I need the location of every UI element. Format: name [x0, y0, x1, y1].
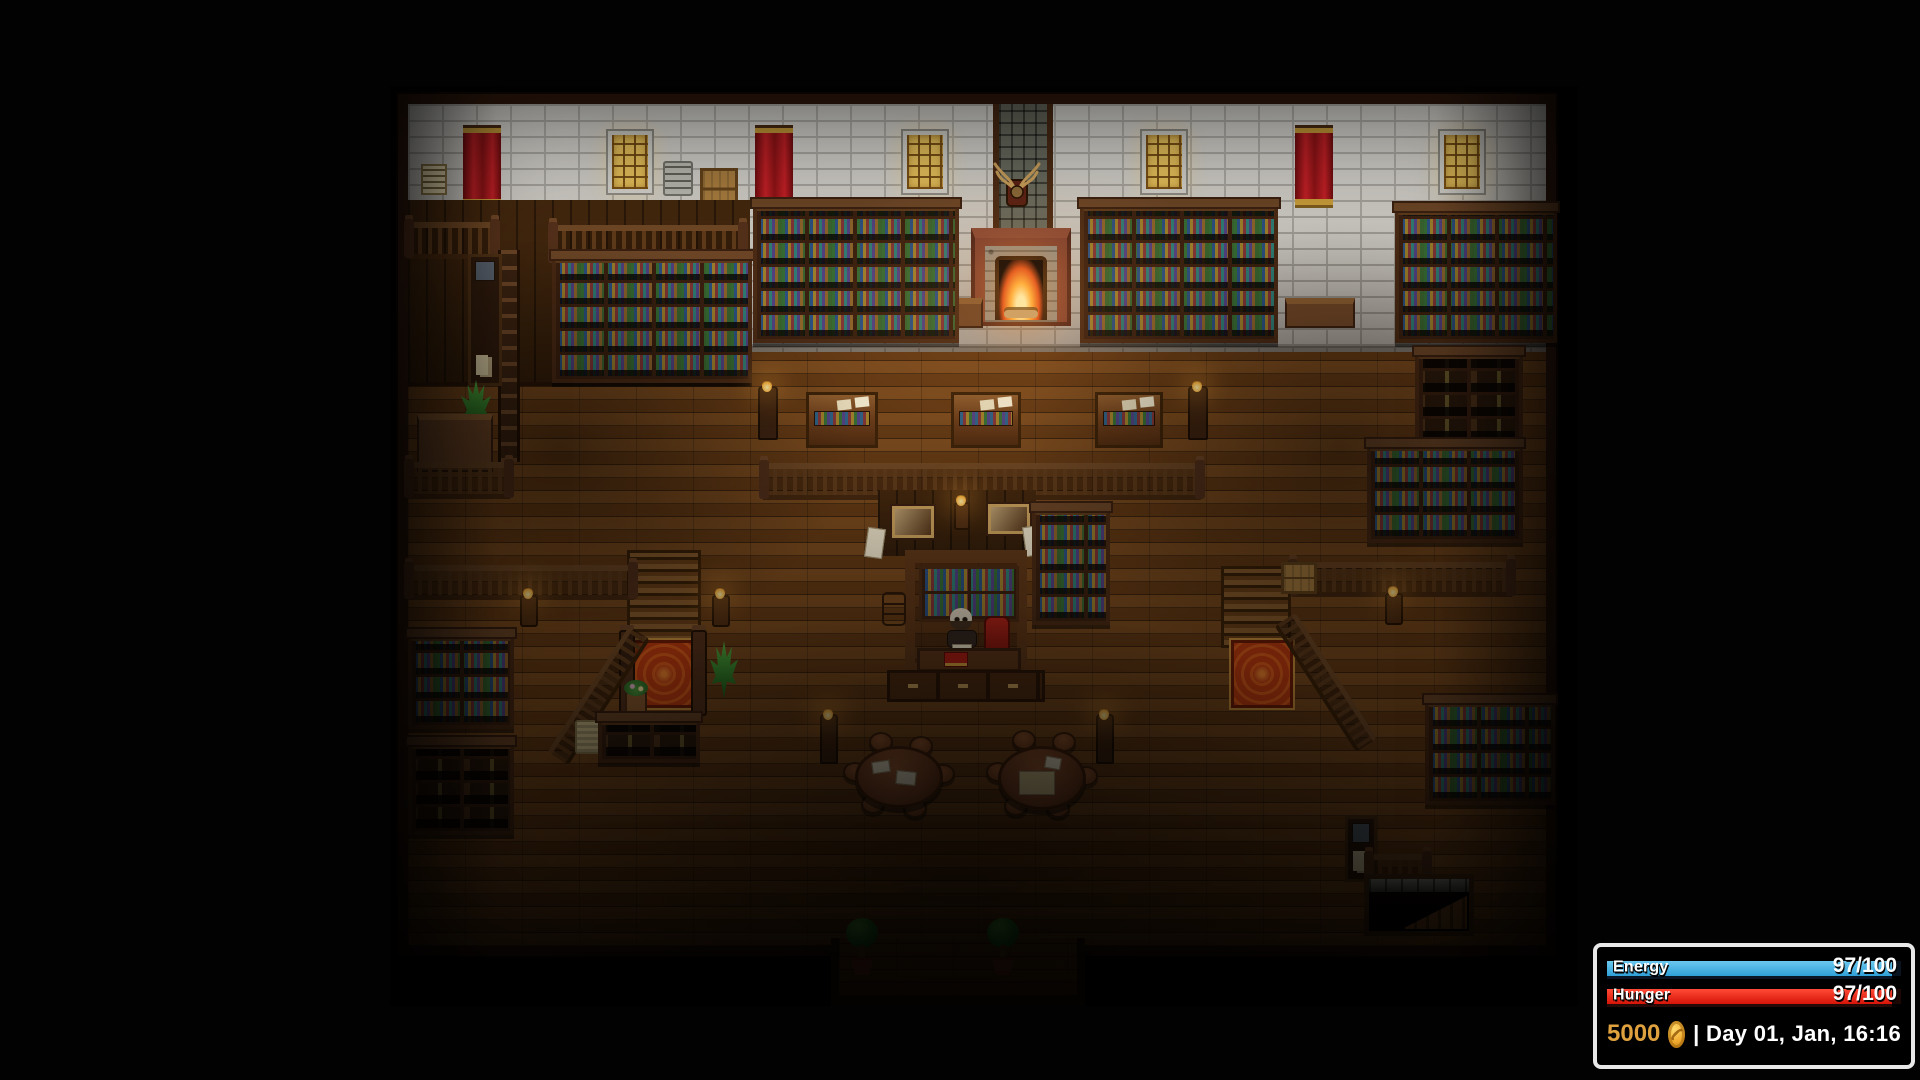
paper: [1044, 756, 1062, 771]
candle-flame-icon: [762, 380, 772, 392]
wall-torch: [520, 595, 538, 627]
bookshelf[interactable]: [1080, 204, 1278, 343]
study-desk[interactable]: [1095, 392, 1163, 448]
energy-row: Energy 97/100: [1607, 961, 1901, 976]
map-paper: [1019, 771, 1055, 795]
round-table[interactable]: [998, 746, 1086, 810]
bookshelf[interactable]: [1032, 508, 1110, 625]
painting: [892, 506, 934, 538]
paper: [895, 770, 916, 786]
guest-book[interactable]: [944, 652, 968, 667]
stairs-down[interactable]: [1364, 874, 1474, 936]
window: [903, 131, 947, 193]
balcony-railing: [1292, 562, 1512, 597]
study-desk[interactable]: [806, 392, 878, 448]
wall-torch: [712, 595, 730, 627]
torch-flame-icon: [956, 494, 966, 506]
torch-flame-icon: [1388, 585, 1398, 597]
status-hud: Energy 97/100 Hunger 97/100 5000 | Day 0…: [1593, 943, 1915, 1069]
fireplace-opening: [995, 256, 1047, 320]
potted-plant: [710, 641, 738, 699]
low-bookshelf[interactable]: [598, 718, 700, 763]
red-carpet: [1231, 640, 1293, 708]
bookshelf[interactable]: [1395, 208, 1557, 343]
barrel: [882, 592, 906, 626]
hunger-label: Hunger: [1613, 986, 1670, 1004]
candle-post: [1096, 714, 1114, 764]
hunger-row: Hunger 97/100: [1607, 989, 1901, 1004]
money-amount: 5000: [1607, 1020, 1660, 1048]
topiary-plant: [986, 918, 1022, 974]
candle-post: [758, 386, 778, 440]
fireplace[interactable]: [971, 228, 1071, 326]
game-screen: Energy 97/100 Hunger 97/100 5000 | Day 0…: [0, 0, 1920, 1080]
long-bench: [1285, 298, 1355, 328]
bookshelf[interactable]: [408, 634, 514, 729]
candle-post: [1188, 386, 1208, 440]
hunger-value: 97/100: [1833, 982, 1897, 1006]
staircase-left[interactable]: [627, 550, 701, 644]
notice-cabinet[interactable]: [468, 254, 502, 386]
candle-flame-icon: [823, 708, 833, 720]
torch-flame-icon: [523, 587, 533, 599]
candle-flame-icon: [1099, 708, 1109, 720]
drawer-cabinet[interactable]: [887, 670, 1045, 702]
antler-trophy-icon: [985, 156, 1049, 212]
wooden-crate: [1281, 562, 1317, 594]
bookshelf[interactable]: [552, 256, 752, 383]
bookshelf[interactable]: [408, 742, 514, 835]
stair-post: [691, 630, 707, 716]
topiary-plant: [845, 918, 881, 974]
wall-note-sign[interactable]: [421, 164, 447, 195]
bookshelf[interactable]: [1425, 700, 1555, 805]
bookshelf[interactable]: [1415, 352, 1523, 447]
red-banner: [755, 128, 793, 205]
bookshelf[interactable]: [1367, 444, 1523, 543]
energy-label: Energy: [1613, 958, 1668, 976]
candle-flame-icon: [1192, 380, 1202, 392]
window: [1440, 131, 1484, 193]
energy-value: 97/100: [1833, 954, 1897, 978]
red-banner: [1295, 128, 1333, 205]
paper: [871, 760, 890, 774]
candle-post: [820, 714, 838, 764]
npc-beard: [950, 621, 972, 630]
window: [1142, 131, 1186, 193]
torch-flame-icon: [715, 587, 725, 599]
library-room: [398, 94, 1556, 956]
counter-desk: [917, 648, 1021, 672]
balcony-railing: [408, 462, 510, 499]
fire-icon: [999, 260, 1043, 320]
bookshelf[interactable]: [753, 204, 959, 343]
wall-torch: [1385, 593, 1403, 625]
study-desk[interactable]: [951, 392, 1021, 448]
round-table[interactable]: [855, 746, 943, 808]
window: [608, 131, 652, 193]
red-banner: [463, 128, 501, 205]
money-date-row: 5000 | Day 01, Jan, 16:16: [1607, 1020, 1901, 1048]
datetime-text: | Day 01, Jan, 16:16: [1693, 1021, 1901, 1047]
stone-plaque-sign[interactable]: [663, 161, 693, 196]
wall-torch: [954, 502, 970, 530]
descending-steps: [1405, 893, 1467, 929]
gold-coin-icon: [1668, 1021, 1685, 1048]
